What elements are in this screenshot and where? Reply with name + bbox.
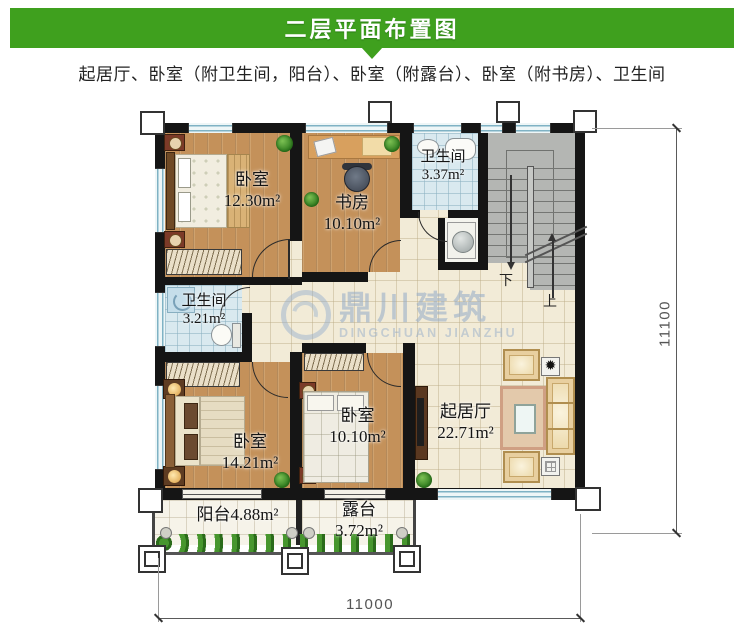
sofa-right	[546, 377, 575, 455]
label-terrace-area: 3.72m²	[303, 521, 415, 542]
watermark-logo-icon	[281, 290, 331, 340]
column-top-left	[140, 111, 165, 135]
label-bedroom3: 卧室 10.10m²	[310, 406, 405, 447]
watermark-text: 鼎川建筑 DINGCHUAN JIANZHU	[339, 291, 517, 340]
bed2-pillow-1	[184, 403, 198, 429]
label-terrace-name: 露台	[303, 500, 415, 521]
dim-ext-right-bottom	[592, 533, 682, 534]
stairs-rail	[527, 166, 534, 288]
balcony-door	[182, 489, 262, 499]
label-study-area: 10.10m²	[302, 214, 402, 235]
label-bedroom1-name: 卧室	[202, 170, 302, 191]
label-bedroom2-name: 卧室	[195, 432, 305, 453]
stairs-down-label: 下	[499, 270, 513, 290]
label-study-name: 书房	[302, 193, 402, 214]
label-bedroom3-area: 10.10m²	[310, 427, 405, 448]
window-top-stairs-b	[515, 123, 551, 133]
plant-study-right	[384, 136, 400, 152]
dim-height-label: 11100	[657, 289, 674, 359]
window-top-bath	[413, 123, 462, 133]
watermark-brand: 鼎川建筑	[339, 291, 517, 324]
column-top-right	[573, 110, 597, 133]
label-balcony-area: 4.88m²	[230, 505, 278, 524]
watermark: 鼎川建筑 DINGCHUAN JIANZHU	[281, 290, 517, 340]
dim-line-bottom	[158, 618, 581, 619]
label-balcony-name: 阳台	[196, 505, 230, 524]
wall-bath-stairs	[478, 123, 488, 270]
armchair-top	[503, 349, 540, 381]
lampstand-bedroom2-bottom	[163, 466, 185, 486]
study-chair	[344, 166, 370, 192]
label-bath-left: 卫生间 3.21m²	[160, 292, 248, 329]
bed1-pillow-2	[178, 192, 191, 222]
window-left-bedroom1	[155, 168, 165, 233]
label-study: 书房 10.10m²	[302, 193, 402, 234]
column-balcony-2	[281, 547, 309, 575]
wall-nook-bottom	[438, 262, 488, 270]
column-bottom-left	[138, 488, 163, 513]
plant-living	[416, 472, 432, 488]
label-bedroom2: 卧室 14.21m²	[195, 432, 305, 473]
header-pointer	[361, 47, 383, 59]
column-balcony-3	[393, 545, 421, 573]
watermark-brand-latin: DINGCHUAN JIANZHU	[339, 326, 517, 340]
wall-study-bottom	[302, 272, 368, 282]
dim-line-right	[676, 128, 677, 533]
wardrobe-bedroom3	[304, 353, 364, 371]
sofa-seam-2	[548, 428, 573, 430]
dim-ext-bottom-left	[158, 558, 159, 622]
label-living: 起居厅 22.71m²	[413, 402, 518, 443]
wall-bath-bottom-b	[448, 210, 478, 218]
label-living-area: 22.71m²	[413, 423, 518, 444]
window-top-stairs-a	[480, 123, 503, 133]
label-bedroom1-area: 12.30m²	[202, 191, 302, 212]
label-bath-left-name: 卫生间	[160, 292, 248, 310]
end-table-top	[541, 357, 560, 376]
stairs-up-arrow	[548, 233, 556, 241]
window-top-bedroom1	[188, 123, 233, 133]
wall-bathleft-bottom	[155, 352, 252, 362]
label-bath-top-name: 卫生间	[405, 148, 481, 166]
flower-pot-1	[160, 527, 172, 539]
column-top-mid2	[496, 101, 520, 123]
plant-bedroom2	[274, 472, 290, 488]
window-bottom-living	[437, 489, 552, 500]
label-bedroom1: 卧室 12.30m²	[202, 170, 302, 211]
wall-right	[575, 123, 585, 500]
column-top-mid1	[368, 101, 392, 123]
dim-ext-bottom-right	[580, 514, 581, 622]
wall-bedroom1-bottom	[155, 277, 302, 285]
bed1-headboard	[166, 152, 175, 230]
sofa-seam-1	[548, 402, 573, 404]
label-bedroom2-area: 14.21m²	[195, 453, 305, 474]
armchair-bottom	[503, 451, 540, 483]
label-bedroom3-name: 卧室	[310, 406, 405, 427]
header-bar: 二层平面布置图	[10, 8, 734, 48]
nightstand-bedroom1-top	[164, 134, 185, 151]
flower-pot-2	[286, 527, 298, 539]
washing-machine	[447, 222, 476, 259]
stairs-up-line	[552, 240, 554, 298]
window-top-study	[305, 123, 388, 133]
end-table-bottom	[541, 457, 560, 476]
subtitle: 起居厅、卧室（附卫生间，阳台）、卧室（附露台）、卧室（附书房）、卫生间	[0, 60, 744, 85]
label-bath-top: 卫生间 3.37m²	[405, 148, 481, 185]
label-terrace: 露台 3.72m²	[303, 500, 415, 541]
stairs-up-label: 上	[543, 291, 557, 311]
floor-plan-page: 二层平面布置图 起居厅、卧室（附卫生间，阳台）、卧室（附露台）、卧室（附书房）、…	[0, 0, 744, 630]
bed2-headboard	[165, 394, 175, 468]
nightstand-bedroom1-bottom	[164, 231, 185, 248]
page-title: 二层平面布置图	[284, 12, 459, 44]
wardrobe-bedroom1	[166, 249, 242, 275]
bed1-pillow-1	[178, 158, 191, 188]
wall-bedroom3-top	[302, 343, 366, 353]
stairs-down-arrow	[507, 262, 515, 270]
label-balcony: 阳台4.88m²	[170, 505, 305, 526]
door-leaf-bedroom1	[288, 239, 290, 279]
label-bath-left-area: 3.21m²	[160, 310, 248, 328]
dim-ext-right-top	[592, 128, 682, 129]
column-bottom-right	[575, 487, 601, 511]
label-bath-top-area: 3.37m²	[405, 166, 481, 184]
column-balcony-1	[138, 545, 166, 573]
label-living-name: 起居厅	[413, 402, 518, 423]
plant-bedroom1	[276, 135, 293, 152]
stairs-down-line	[510, 175, 512, 263]
dim-width-label: 11000	[300, 596, 440, 613]
terrace-door	[324, 489, 386, 499]
